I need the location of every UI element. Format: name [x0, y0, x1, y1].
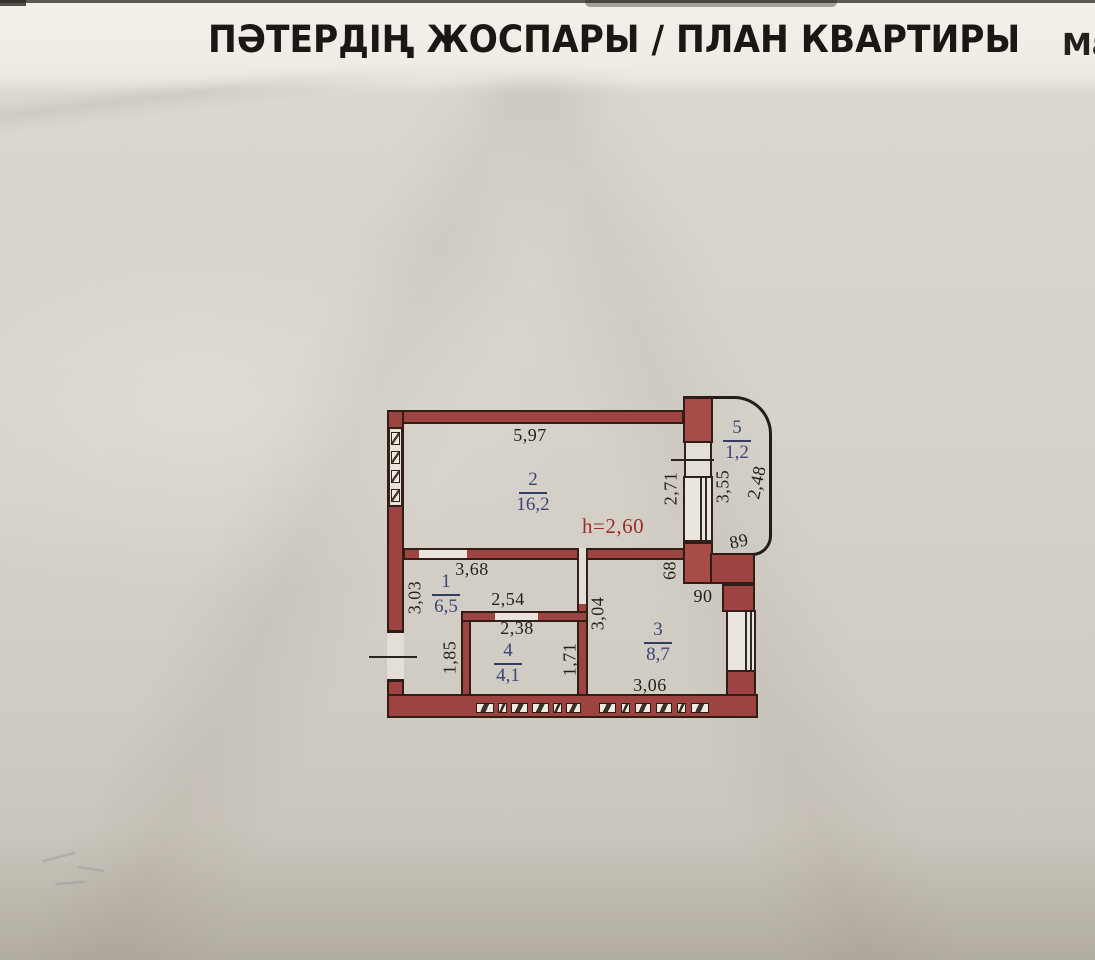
dim-kitchen-left: 3,04 [588, 595, 609, 633]
hatch-icon [677, 703, 686, 713]
wall-kitchen-right-bottom [726, 670, 756, 696]
cut-off-right-text: Ма [1062, 28, 1095, 63]
hatch-icon [566, 703, 581, 713]
dimension-tick-balcony [671, 459, 714, 461]
window-pane-icon [391, 451, 400, 464]
window-pane-icon [391, 489, 400, 502]
hatch-icon [621, 703, 630, 713]
window-hatch-row-left [476, 703, 581, 713]
wall-bath-left [461, 611, 471, 696]
room-4-label: 4 4,1 [482, 641, 534, 686]
hatch-icon [498, 703, 507, 713]
dim-kitchen-top: 68 [660, 555, 681, 587]
scan-edge-line [0, 0, 1095, 3]
window-pane-icon [391, 470, 400, 483]
wall-balcony-pier-bottom [683, 542, 713, 584]
pencil-smudge [78, 866, 104, 872]
room-number: 3 [644, 620, 672, 644]
pencil-smudge [55, 881, 85, 886]
wall-top [387, 410, 684, 424]
wall-step-block-a [710, 553, 755, 584]
room-number: 1 [432, 572, 460, 596]
room-5-label: 5 1,2 [711, 418, 763, 463]
scanned-floor-plan-page: ПӘТЕРДІҢ ЖОСПАРЫ / ПЛАН КВАРТИРЫ Ма [0, 0, 1095, 960]
dim-wall2-right: 2,71 [661, 470, 682, 508]
dim-bath-right: 1,71 [560, 641, 581, 679]
dimension-tick-left [369, 656, 417, 658]
room-2-label: 2 16,2 [505, 470, 561, 515]
scan-edge-notch [585, 0, 837, 7]
dim-kitchen-width: 3,06 [619, 675, 681, 696]
dim-corridor-inner: 2,54 [477, 589, 539, 610]
hatch-icon [656, 703, 672, 713]
window-kitchen-right [726, 610, 756, 672]
room-area: 8,7 [632, 645, 684, 666]
dim-room2-width: 5,97 [494, 425, 566, 446]
room-area: 6,5 [420, 597, 472, 618]
dim-corridor-left-lower: 1,85 [440, 639, 461, 677]
room-area: 1,2 [711, 443, 763, 464]
dim-balcony-inner: 3,55 [713, 468, 734, 506]
room-number: 2 [519, 470, 547, 494]
hatch-icon [553, 703, 562, 713]
door-corridor-kitchen [577, 548, 588, 604]
page-title: ПӘТЕРДІҢ ЖОСПАРЫ / ПЛАН КВАРТИРЫ [208, 18, 1020, 61]
ceiling-height-note: h=2,60 [582, 514, 644, 539]
hatch-icon [532, 703, 549, 713]
hatch-icon [599, 703, 616, 713]
room-area: 4,1 [482, 666, 534, 687]
wall-balcony-pier-top [683, 397, 713, 443]
window-hatch-row-right [599, 703, 709, 713]
hatch-icon [476, 703, 494, 713]
scan-corner-mark [0, 0, 26, 6]
room-1-label: 1 6,5 [420, 572, 472, 617]
hatch-icon [691, 703, 709, 713]
window-room2-balcony [683, 476, 713, 542]
hatch-icon [511, 703, 528, 713]
pencil-smudge [42, 852, 75, 862]
hatch-icon [635, 703, 651, 713]
dim-kitchen-step: 90 [687, 586, 719, 607]
room-area: 16,2 [505, 495, 561, 516]
wall-step-block-b [722, 584, 755, 612]
window-left-wall [388, 427, 403, 507]
window-pane-icon [391, 432, 400, 445]
room-3-label: 3 8,7 [632, 620, 684, 665]
room-number: 4 [494, 641, 522, 665]
room-number: 5 [723, 418, 751, 442]
dim-bath-width: 2,38 [486, 618, 548, 639]
